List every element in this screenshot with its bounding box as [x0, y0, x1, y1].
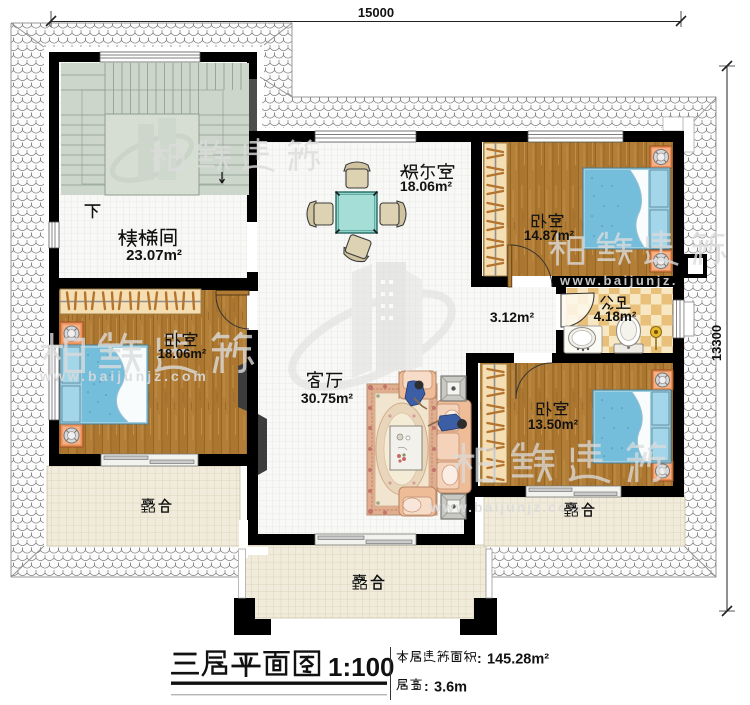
svg-text:18.06m²: 18.06m² [158, 346, 207, 361]
svg-text:23.07m²: 23.07m² [126, 247, 182, 264]
svg-text::: : [477, 650, 482, 666]
svg-text:30.75m²: 30.75m² [301, 390, 353, 406]
svg-text:13.50m²: 13.50m² [528, 417, 579, 432]
svg-text:www.baijunjz.: www.baijunjz. [559, 273, 678, 288]
svg-text:13300: 13300 [709, 325, 724, 361]
svg-text:14.87m²: 14.87m² [524, 228, 575, 243]
svg-text:18.06m²: 18.06m² [400, 178, 452, 194]
svg-text:3.6m: 3.6m [434, 680, 467, 696]
svg-text:www.baijunjz.com: www.baijunjz.com [429, 499, 583, 515]
svg-text:www.baijunjz.com: www.baijunjz.com [39, 368, 209, 384]
svg-text:4.18m²: 4.18m² [594, 309, 637, 324]
svg-text:15000: 15000 [358, 5, 394, 20]
svg-text:1:100: 1:100 [328, 652, 395, 682]
svg-text:145.28m²: 145.28m² [487, 652, 549, 668]
svg-text::: : [424, 678, 429, 694]
svg-text:3.12m²: 3.12m² [490, 309, 535, 325]
